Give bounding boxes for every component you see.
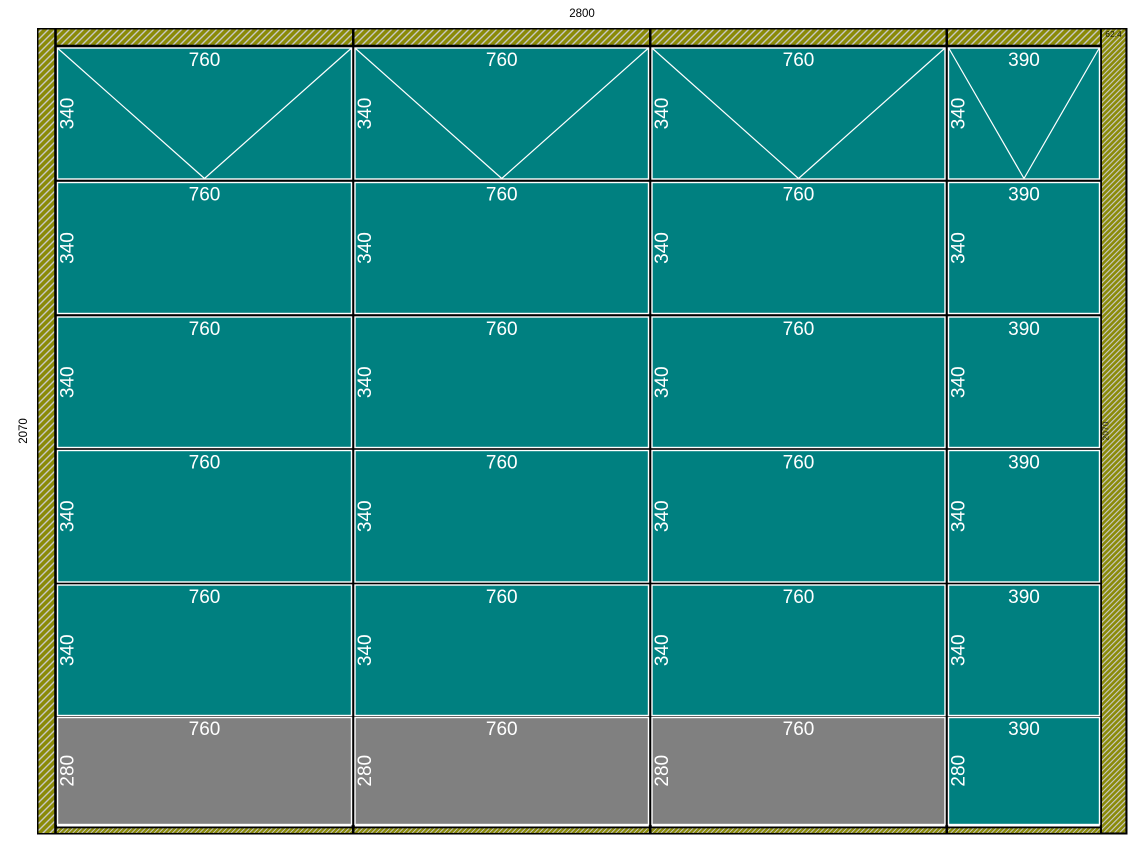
svg-text:340: 340: [652, 232, 673, 264]
svg-text:760: 760: [783, 50, 815, 71]
svg-text:340: 340: [652, 634, 673, 666]
svg-text:340: 340: [948, 366, 969, 398]
svg-text:340: 340: [948, 634, 969, 666]
svg-text:340: 340: [355, 98, 376, 130]
svg-text:760: 760: [486, 50, 518, 71]
svg-text:390: 390: [1008, 719, 1040, 740]
svg-text:340: 340: [355, 232, 376, 264]
svg-text:2070: 2070: [1101, 421, 1111, 440]
svg-text:390: 390: [1008, 50, 1040, 71]
svg-text:390: 390: [1008, 319, 1040, 340]
svg-text:390: 390: [1008, 452, 1040, 473]
svg-text:760: 760: [189, 587, 221, 608]
svg-text:760: 760: [783, 587, 815, 608]
svg-text:390: 390: [1008, 587, 1040, 608]
svg-text:340: 340: [355, 500, 376, 532]
svg-text:340: 340: [355, 634, 376, 666]
svg-text:340: 340: [57, 634, 78, 666]
svg-text:760: 760: [486, 587, 518, 608]
svg-text:760: 760: [783, 184, 815, 205]
svg-text:340: 340: [652, 366, 673, 398]
svg-text:760: 760: [189, 719, 221, 740]
svg-text:340: 340: [948, 232, 969, 264]
svg-text:340: 340: [57, 98, 78, 130]
svg-text:760: 760: [189, 452, 221, 473]
svg-text:280: 280: [652, 755, 673, 787]
svg-text:2070: 2070: [18, 418, 30, 444]
svg-text:760: 760: [783, 719, 815, 740]
svg-text:760: 760: [189, 50, 221, 71]
svg-text:340: 340: [57, 366, 78, 398]
svg-text:340: 340: [652, 98, 673, 130]
svg-text:760: 760: [783, 319, 815, 340]
svg-text:340: 340: [57, 500, 78, 532]
svg-text:62.4: 62.4: [1105, 29, 1122, 39]
svg-text:340: 340: [355, 366, 376, 398]
svg-text:760: 760: [189, 319, 221, 340]
svg-text:760: 760: [486, 719, 518, 740]
svg-text:280: 280: [355, 755, 376, 787]
svg-text:340: 340: [948, 98, 969, 130]
svg-text:390: 390: [1008, 184, 1040, 205]
svg-text:340: 340: [652, 500, 673, 532]
svg-text:760: 760: [189, 184, 221, 205]
svg-text:760: 760: [783, 452, 815, 473]
svg-text:280: 280: [948, 755, 969, 787]
svg-text:760: 760: [486, 452, 518, 473]
svg-text:340: 340: [57, 232, 78, 264]
svg-text:760: 760: [486, 184, 518, 205]
svg-text:340: 340: [948, 500, 969, 532]
svg-text:760: 760: [486, 319, 518, 340]
svg-text:280: 280: [57, 755, 78, 787]
svg-text:2800: 2800: [569, 8, 595, 20]
